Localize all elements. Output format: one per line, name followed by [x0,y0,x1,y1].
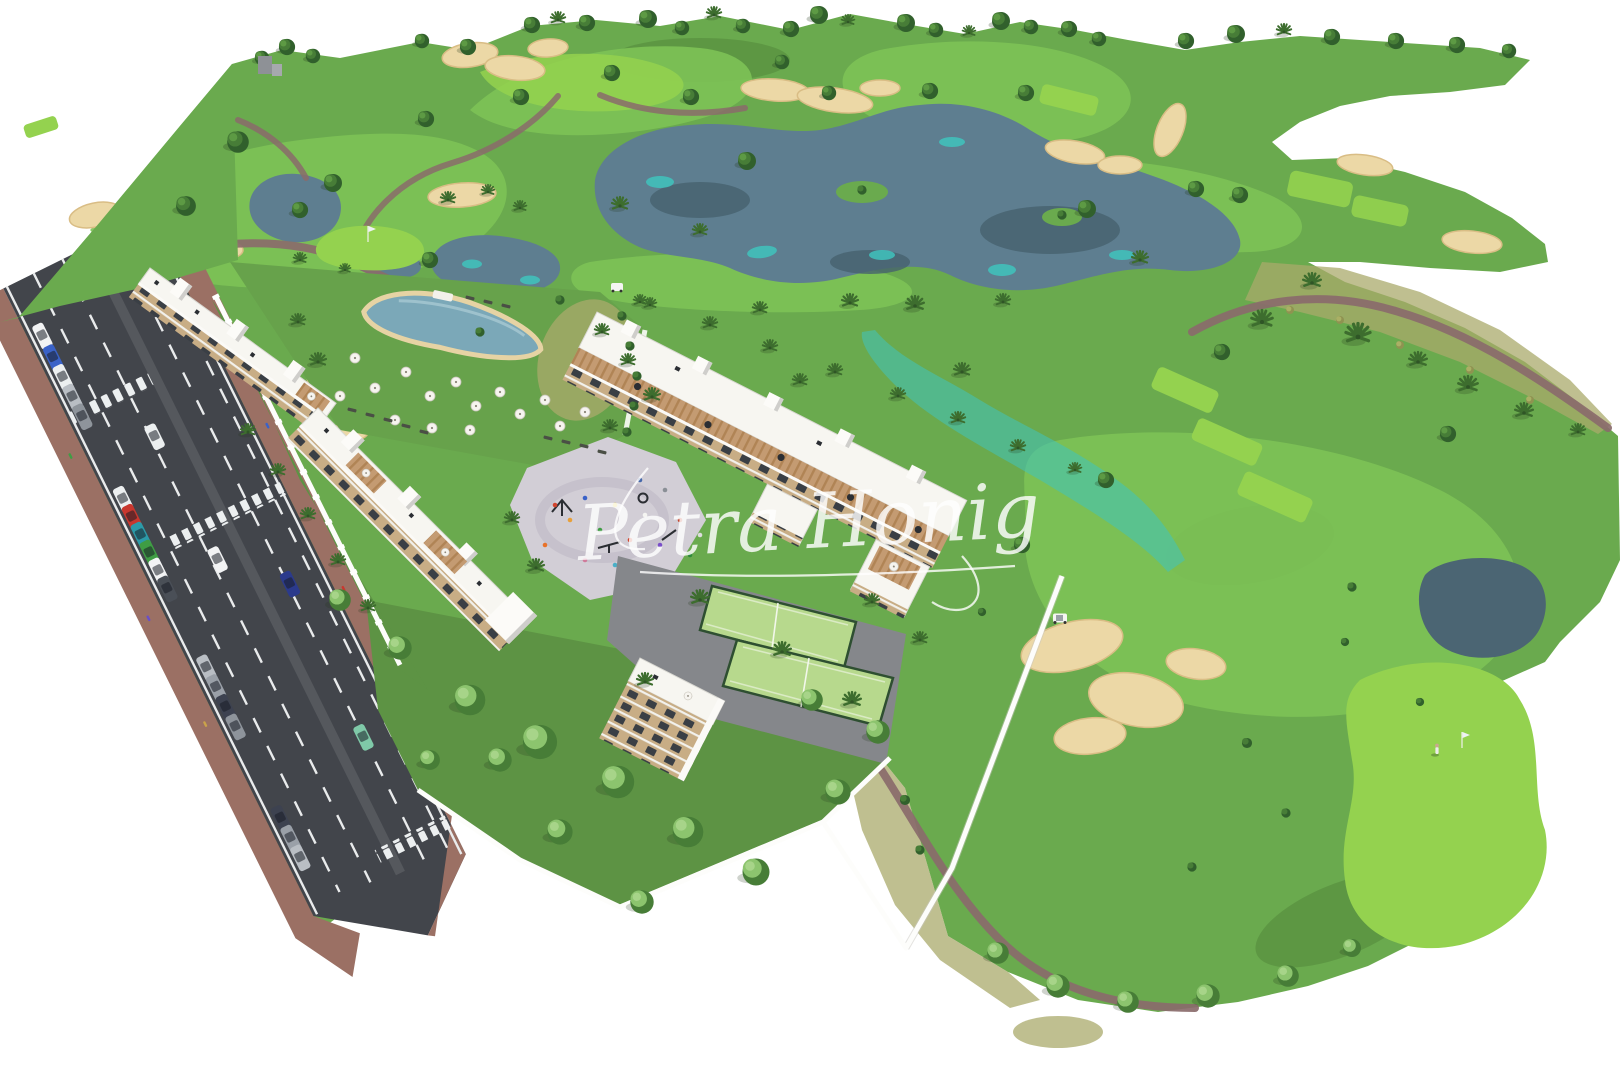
putting-green-bottom-right [1344,663,1547,949]
bottom-right-lake [1419,558,1546,658]
gray-structure [258,56,272,74]
scene-svg: Petra Honig [0,0,1620,1080]
aerial-render-canvas: Petra Honig [0,0,1620,1080]
